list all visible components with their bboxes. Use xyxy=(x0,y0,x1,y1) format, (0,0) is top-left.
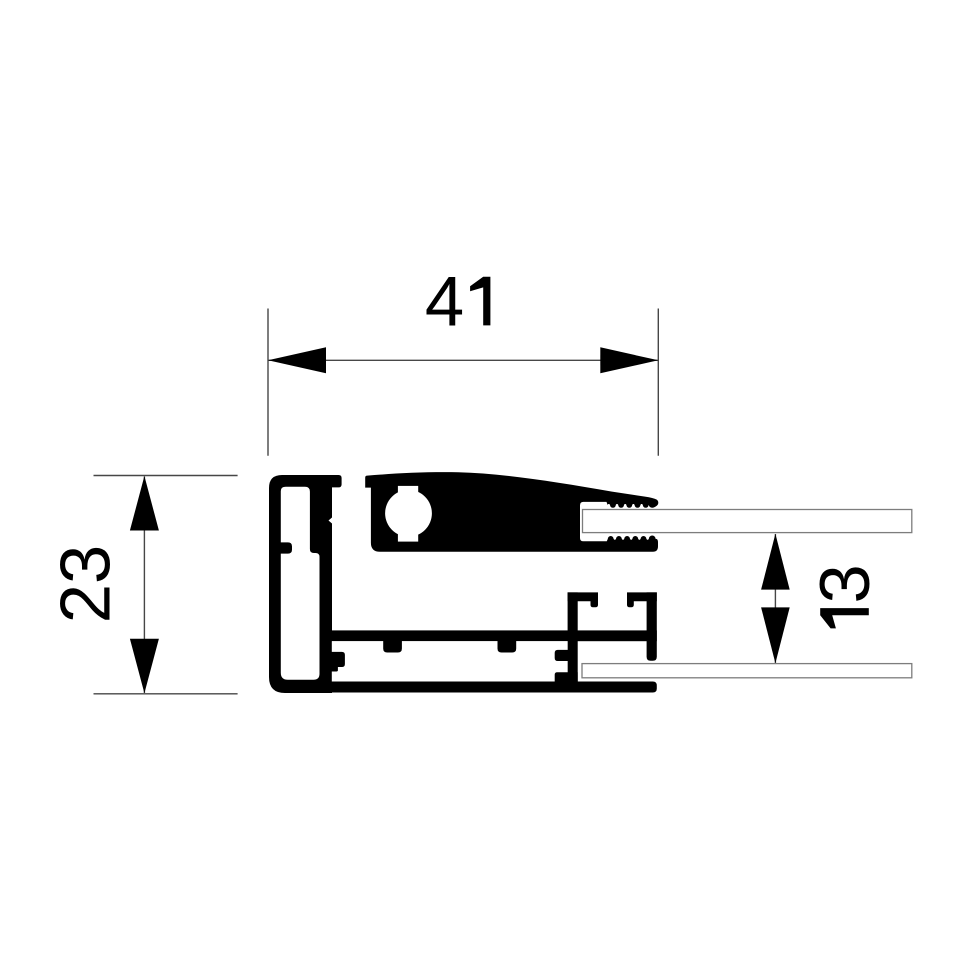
svg-text:23: 23 xyxy=(46,545,125,624)
svg-text:3: 3 xyxy=(805,564,884,603)
svg-text:4: 4 xyxy=(425,261,464,340)
